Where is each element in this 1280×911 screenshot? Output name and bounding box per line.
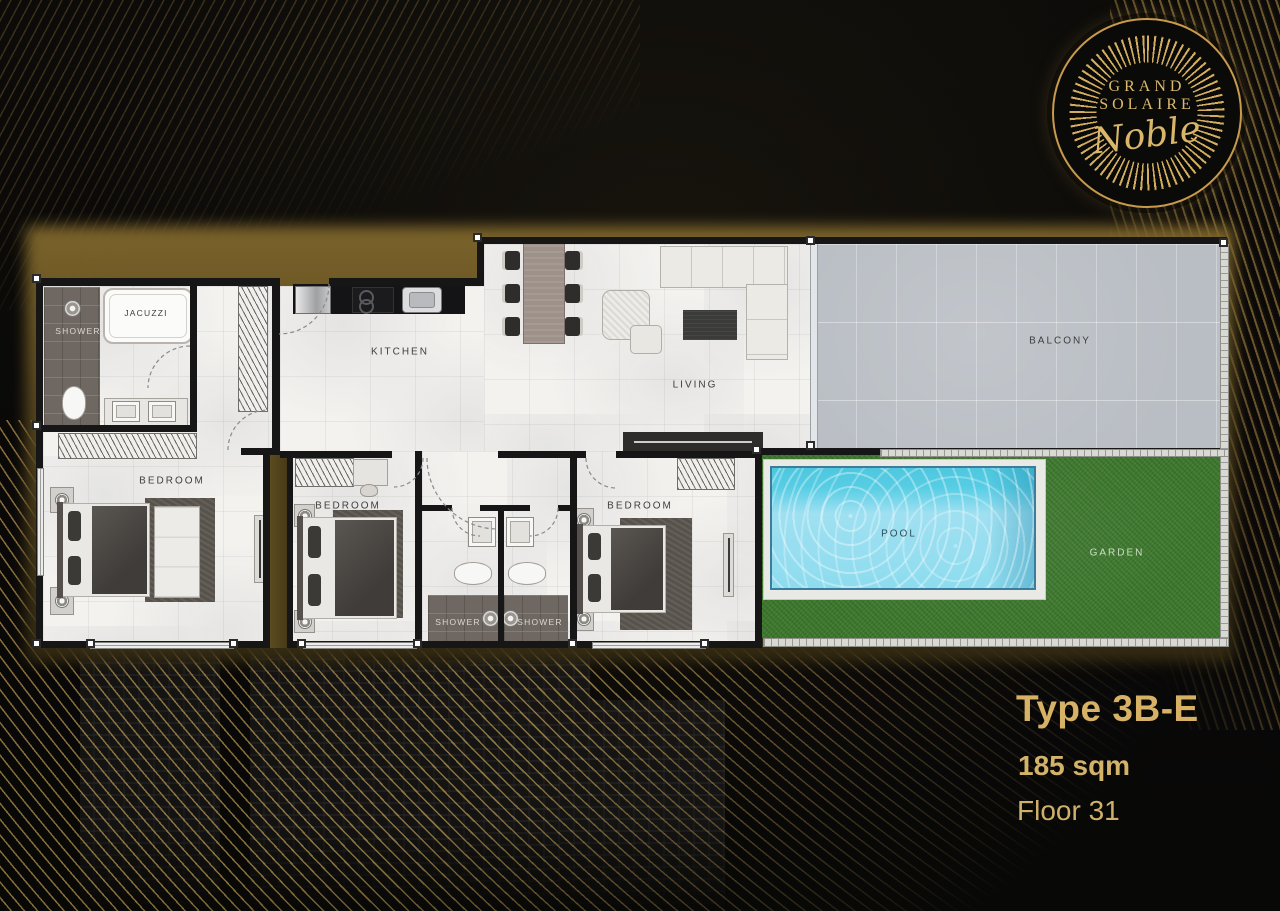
master-toilet-icon (62, 386, 86, 420)
stove-icon (352, 287, 394, 313)
corridor-wardrobe (238, 286, 268, 412)
master-wardrobe (58, 433, 197, 459)
tv-console (623, 432, 763, 453)
structural-gap (270, 455, 287, 648)
wall-segment (477, 237, 1227, 244)
wall-segment (36, 278, 43, 648)
balcony-railing (1220, 244, 1229, 646)
kitchen-sink-icon (402, 287, 442, 313)
desk-icon (353, 459, 388, 486)
label-garden: GARDEN (1090, 548, 1145, 559)
sofa-icon (660, 246, 788, 288)
label-bedroom-3: BEDROOM (607, 501, 673, 512)
wall-post (32, 639, 41, 648)
poster-canvas: SHOWER JACUZZI KITCHEN LIVING BALCONY BE… (0, 0, 1280, 911)
dining-chair-icon (505, 284, 520, 303)
master-bench (154, 506, 200, 598)
wall-post (297, 639, 306, 648)
dining-chair-icon (565, 251, 580, 270)
logo-text: GRAND SOLAIRE Noble (1054, 20, 1240, 206)
dining-chair-icon (505, 251, 520, 270)
wall-post (700, 639, 709, 648)
wall-post (32, 274, 41, 283)
label-kitchen: KITCHEN (371, 347, 429, 358)
label-shower-master: SHOWER (55, 326, 100, 336)
wall-segment (329, 278, 484, 286)
wall-post (568, 639, 577, 648)
ottoman-icon (630, 325, 662, 354)
fridge-icon (295, 286, 331, 314)
wardrobe (677, 458, 735, 490)
sink-icon (506, 517, 534, 547)
logo-line-1: GRAND (1109, 78, 1186, 96)
master-bed-icon (62, 503, 150, 597)
wall-segment (190, 278, 197, 432)
dining-chair-icon (565, 317, 580, 336)
wall-segment (287, 451, 293, 648)
lamp-icon (577, 612, 591, 626)
wall-post (86, 639, 95, 648)
wall-post (413, 639, 422, 648)
sink-icon (112, 401, 140, 422)
logo-script: Noble (1091, 112, 1204, 161)
wall-post (806, 236, 815, 245)
unit-floor: Floor 31 (1017, 795, 1120, 827)
wall-segment (415, 451, 422, 641)
dining-table-icon (523, 243, 565, 344)
desk-chair-icon (360, 484, 378, 497)
wall-segment (280, 451, 392, 458)
wall-segment (477, 237, 484, 286)
unit-type: Type 3B-E (1016, 688, 1199, 730)
wall-segment (272, 278, 280, 455)
toilet-icon (454, 562, 492, 585)
toilet-icon (508, 562, 546, 585)
balcony-inner-railing (880, 449, 1229, 457)
wall-post (229, 639, 238, 648)
label-bedroom-master: BEDROOM (139, 476, 205, 487)
sink-icon (468, 517, 496, 547)
window (37, 468, 44, 576)
wall-segment (616, 451, 755, 458)
wall-post (32, 421, 41, 430)
wall-segment (480, 505, 530, 511)
dining-chair-icon (505, 317, 520, 336)
bed-icon (302, 517, 397, 619)
window (592, 642, 706, 649)
wall-post (1219, 238, 1228, 247)
wall-post (473, 233, 482, 242)
label-jacuzzi: JACUZZI (124, 308, 167, 318)
label-shower-2: SHOWER (517, 617, 562, 627)
label-shower-1: SHOWER (435, 617, 480, 627)
grand-solaire-noble-logo: GRAND SOLAIRE Noble (1052, 18, 1242, 208)
tv-panel (723, 533, 734, 597)
wall-segment (570, 451, 577, 641)
wall-segment (422, 505, 452, 511)
wall-segment (36, 278, 279, 286)
balcony-sliding-door (810, 244, 818, 448)
wall-post (752, 445, 761, 454)
unit-area: 185 sqm (1018, 750, 1130, 782)
terrace-railing (763, 638, 1229, 647)
sofa-chaise-icon (746, 284, 788, 360)
bed-icon (582, 525, 666, 613)
wardrobe (295, 458, 354, 487)
wall-segment (558, 505, 577, 511)
unit-info: Type 3B-E 185 sqm Floor 31 (1016, 688, 1199, 730)
wall-segment (498, 505, 504, 641)
label-bedroom-2: BEDROOM (315, 501, 381, 512)
label-balcony: BALCONY (1029, 336, 1091, 347)
wall-segment (755, 448, 762, 648)
dining-chair-icon (565, 284, 580, 303)
label-pool: POOL (881, 529, 917, 540)
wall-segment (263, 448, 270, 648)
wall-post (806, 441, 815, 450)
window (90, 642, 234, 649)
sink-icon (148, 401, 176, 422)
balcony-floor (816, 244, 1220, 448)
window (303, 642, 417, 649)
coffee-table-icon (683, 310, 737, 340)
label-living: LIVING (673, 380, 718, 391)
wall-segment (36, 425, 197, 432)
shower-head-icon (64, 300, 81, 317)
shower-head-icon (482, 610, 499, 627)
